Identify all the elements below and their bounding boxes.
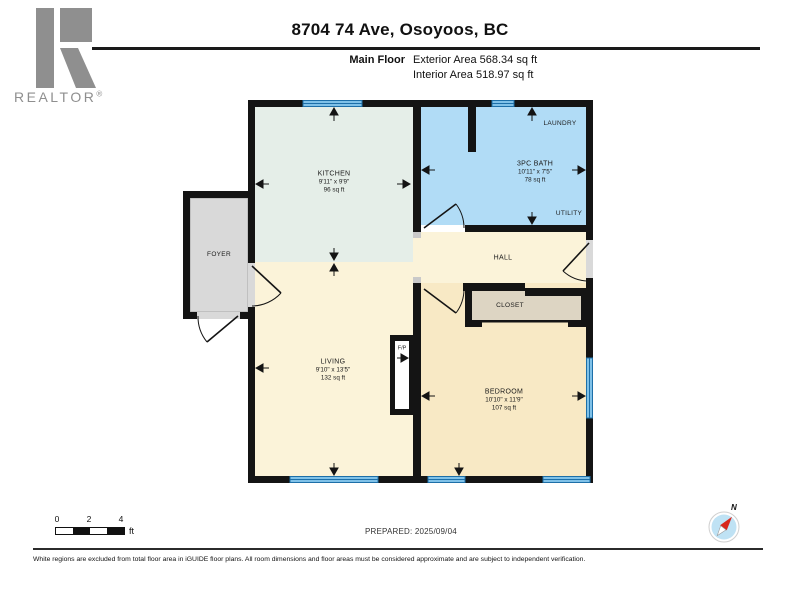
scale-tick-0: 0 xyxy=(51,514,63,524)
wall-interior-vertical-upper xyxy=(413,107,421,232)
prepared-date: PREPARED: 2025/09/04 xyxy=(365,527,457,536)
laundry-label: LAUNDRY xyxy=(543,120,576,128)
scale-tick-4: 4 xyxy=(115,514,127,524)
disclaimer-text: White regions are excluded from total fl… xyxy=(33,556,773,563)
foyer-door-threshold xyxy=(248,263,255,307)
scale-unit: ft xyxy=(129,526,134,536)
fireplace-label: F/P xyxy=(398,345,407,352)
laundry-partition-wall xyxy=(468,107,476,152)
wall-left-upper xyxy=(248,100,255,263)
kitchen-label: KITCHEN 9'11" x 9'9" 96 sq ft xyxy=(318,169,351,194)
hall-opening xyxy=(413,238,421,277)
living-area: 132 sq ft xyxy=(316,375,351,383)
closet-wall-bottom-right xyxy=(568,320,588,327)
compass-icon xyxy=(702,505,746,549)
scale-segment xyxy=(73,528,90,534)
bath-area: 78 sq ft xyxy=(517,177,553,185)
wall-interior-vertical-lower xyxy=(413,283,421,476)
bath-name: 3PC BATH xyxy=(517,159,553,168)
hall-opening-threshold-top xyxy=(413,232,421,238)
bedroom-label: BEDROOM 10'10" x 11'9" 107 sq ft xyxy=(485,387,523,412)
scale-segment xyxy=(107,528,124,534)
bath-wall-bottom xyxy=(465,225,593,232)
closet-wall-bottom-left xyxy=(465,320,482,327)
closet-sliding-door xyxy=(482,320,568,323)
bath-label: 3PC BATH 10'11" x 7'5" 78 sq ft xyxy=(517,159,553,184)
bath-dims: 10'11" x 7'5" xyxy=(517,168,553,176)
wall-left-lower xyxy=(248,307,255,483)
foyer-label: FOYER xyxy=(207,251,231,259)
bedroom-name: BEDROOM xyxy=(485,387,523,396)
kitchen-name: KITCHEN xyxy=(318,169,351,178)
scale-segment xyxy=(56,528,73,534)
hall-wall-bottom-right xyxy=(525,288,588,296)
floorplan-page: 8704 74 Ave, Osoyoos, BC Main Floor Exte… xyxy=(0,0,800,600)
living-dims: 9'10" x 13'5" xyxy=(316,366,351,374)
utility-label: UTILITY xyxy=(556,210,582,218)
wall-top xyxy=(248,100,593,107)
hall-label: HALL xyxy=(494,253,513,262)
foyer-wall-bottom-right xyxy=(240,312,255,319)
living-name: LIVING xyxy=(316,357,351,366)
compass-north-label: N xyxy=(731,503,737,512)
foyer-wall-left xyxy=(183,191,190,319)
foyer-exterior-door-threshold xyxy=(197,312,240,319)
footer-divider xyxy=(33,548,763,550)
kitchen-area: 96 sq ft xyxy=(318,187,351,195)
foyer-wall-top xyxy=(183,191,255,198)
bedroom-dims: 10'10" x 11'9" xyxy=(485,396,523,404)
hall-wall-bottom-left xyxy=(463,283,525,291)
foyer-exterior-door xyxy=(198,316,238,342)
living-label: LIVING 9'10" x 13'5" 132 sq ft xyxy=(316,357,351,382)
scale-tick-2: 2 xyxy=(83,514,95,524)
scale-bar xyxy=(55,527,125,535)
wall-right-upper xyxy=(586,100,593,240)
kitchen-dims: 9'11" x 9'9" xyxy=(318,178,351,186)
scale-segment xyxy=(90,528,107,534)
bedroom-area: 107 sq ft xyxy=(485,405,523,413)
hall-opening-threshold-bottom xyxy=(413,277,421,283)
floorplan-drawing xyxy=(0,0,800,600)
closet-label: CLOSET xyxy=(496,302,524,310)
foyer-wall-bottom-left xyxy=(183,312,197,319)
